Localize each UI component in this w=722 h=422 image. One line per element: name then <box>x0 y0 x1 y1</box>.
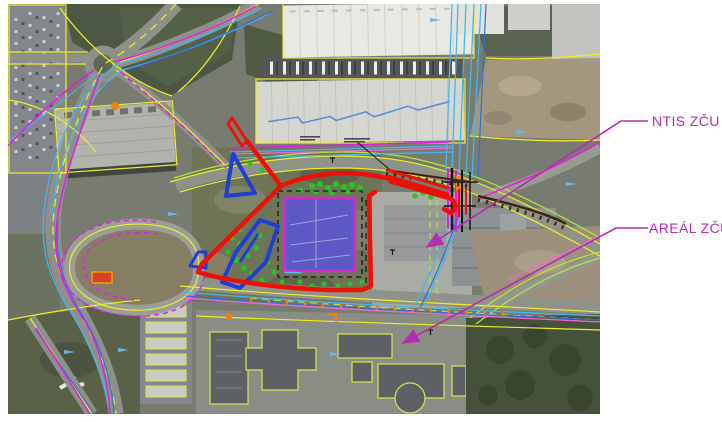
document-page: NTIS ZČU AREÁL ZČU <box>0 0 722 422</box>
label-ntis-zcu: NTIS ZČU <box>652 113 720 129</box>
label-areal-zcu: AREÁL ZČU <box>649 220 722 236</box>
aerial-map-figure <box>0 0 722 422</box>
development-site-area <box>284 198 355 271</box>
